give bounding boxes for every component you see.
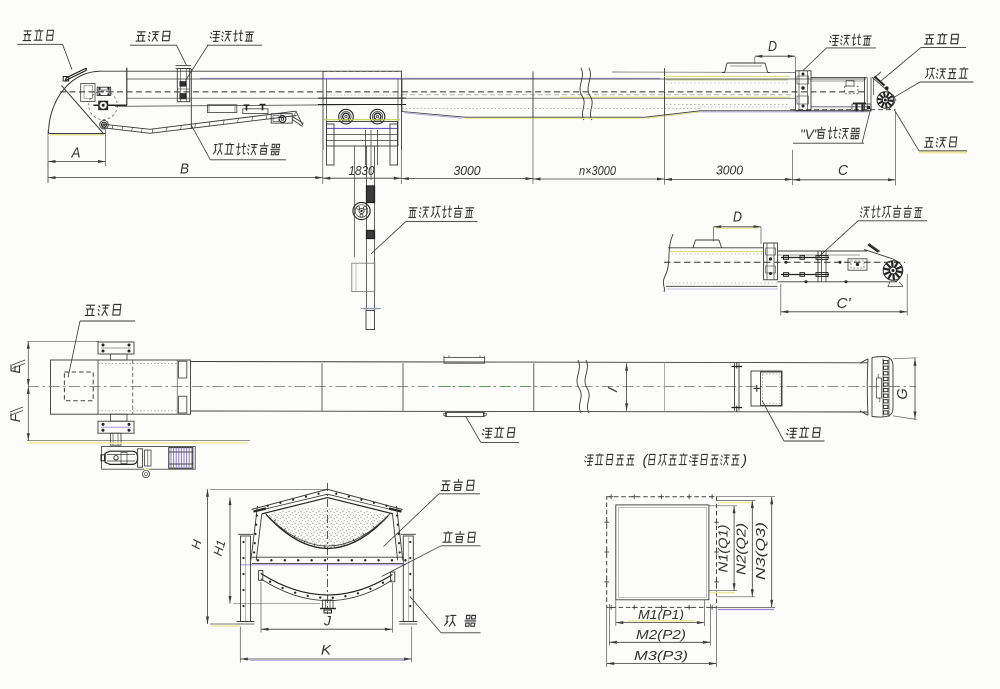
svg-text:J: J: [323, 614, 331, 629]
svg-text:D: D: [733, 210, 742, 226]
svg-text:B: B: [180, 161, 189, 178]
svg-text:C': C': [837, 295, 852, 312]
svg-text:3000: 3000: [454, 163, 482, 178]
svg-text:N2(Q2): N2(Q2): [735, 523, 749, 575]
svg-text:"V": "V": [800, 127, 820, 142]
svg-text:M1(P1): M1(P1): [638, 607, 684, 622]
svg-text:D: D: [768, 39, 777, 55]
svg-text:3000: 3000: [716, 163, 744, 178]
svg-text:M2(P2): M2(P2): [636, 627, 686, 642]
svg-text:N1(Q1): N1(Q1): [717, 525, 731, 573]
svg-text:K: K: [321, 642, 332, 658]
svg-text:F: F: [8, 413, 23, 422]
svg-text:G: G: [895, 388, 911, 399]
svg-text:C: C: [838, 162, 848, 179]
svg-text:N3(Q3): N3(Q3): [754, 522, 768, 580]
svg-text:): ): [740, 452, 747, 469]
svg-text:A: A: [71, 145, 81, 162]
svg-text:1830: 1830: [349, 163, 376, 178]
svg-text:M3(P3): M3(P3): [634, 648, 688, 663]
svg-text:n×3000: n×3000: [579, 163, 617, 178]
